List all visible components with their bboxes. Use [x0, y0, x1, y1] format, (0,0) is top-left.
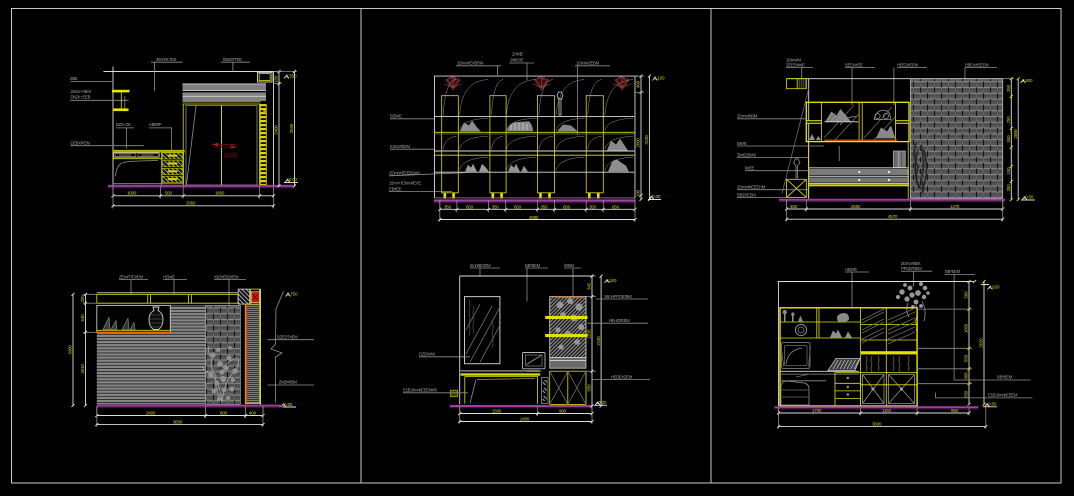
svg-text:2400: 2400 [146, 410, 156, 415]
svg-text:2400: 2400 [520, 416, 530, 421]
svg-text:2400: 2400 [274, 125, 279, 135]
svg-text:1150: 1150 [882, 408, 892, 413]
svg-text:4570: 4570 [888, 214, 898, 219]
svg-text:1Dmn#2EBM: 1Dmn#2EBM [576, 61, 600, 66]
svg-text:HEDE#ZEM: HEDE#ZEM [611, 374, 633, 379]
svg-text:ZEmRLTEE: ZEmRLTEE [156, 57, 177, 62]
svg-text:Zk#iZ@#M: Zk#iZ@#M [737, 152, 756, 157]
svg-text:HEk#E: HEk#E [163, 274, 175, 279]
svg-text:BB*BEM: BB*BEM [525, 263, 541, 268]
svg-text:2#kE#E: 2#kE#E [510, 58, 524, 63]
svg-text:BZEDT#EM: BZEDT#EM [277, 335, 298, 340]
svg-text:550: 550 [964, 390, 969, 398]
svg-text:540: 540 [80, 314, 85, 322]
svg-text:DZBX#M: DZBX#M [419, 352, 435, 357]
svg-text:300: 300 [964, 372, 969, 380]
svg-text:1050: 1050 [964, 323, 969, 333]
svg-text:k#EE: k#EE [745, 166, 755, 171]
svg-text:400: 400 [249, 410, 257, 415]
svg-text:k#BM: k#BM [564, 263, 575, 268]
svg-text:800: 800 [220, 410, 228, 415]
svg-text:HEHZ#EEM: HEHZ#EEM [609, 318, 631, 323]
svg-text:350: 350 [492, 205, 500, 210]
svg-text:DhZK+EEB: DhZK+EEB [71, 95, 91, 100]
svg-text:ZBE: ZBE [70, 76, 78, 81]
svg-text:345: 345 [587, 282, 592, 290]
svg-text:1470: 1470 [950, 204, 960, 209]
svg-text:350: 350 [1006, 84, 1011, 92]
svg-text:1235: 1235 [587, 329, 592, 339]
svg-text:150: 150 [1006, 167, 1011, 175]
svg-text:2650: 2650 [851, 204, 861, 209]
svg-text:20mm+BEK: 20mm+BEK [71, 89, 92, 94]
svg-text:3100: 3100 [644, 135, 649, 145]
svg-text:650: 650 [514, 205, 522, 210]
svg-text:3800: 3800 [872, 421, 882, 426]
svg-text:kEBZ#TEE: kEBZ#TEE [223, 57, 242, 62]
svg-text:2610: 2610 [80, 364, 85, 374]
svg-text:3600: 3600 [173, 419, 183, 424]
svg-text:18mnPPGB*BM: 18mnPPGB*BM [604, 294, 632, 299]
svg-text:DZBX/FEM: DZBX/FEM [71, 141, 91, 146]
svg-text:BZS+ZE,: BZS+ZE, [116, 122, 132, 127]
svg-text:550: 550 [587, 384, 592, 392]
svg-text:2130: 2130 [596, 336, 601, 346]
svg-text:3360: 3360 [186, 201, 196, 206]
svg-text:BK#E: BK#E [737, 141, 747, 146]
svg-text:560: 560 [964, 291, 969, 299]
svg-text:1500: 1500 [492, 408, 502, 413]
svg-text:HEEZ#EEM: HEEZ#EEM [897, 62, 918, 67]
svg-text:E3mn#kEM: E3mn#kEM [390, 144, 411, 149]
svg-text:BEEK#EE: BEEK#EE [845, 62, 863, 67]
svg-text:350: 350 [589, 205, 597, 210]
svg-text:BBEK#EEEM: BBEK#EEEM [965, 62, 989, 67]
svg-text:650: 650 [563, 205, 571, 210]
svg-text:BB*BEM: BB*BEM [997, 374, 1013, 379]
svg-text:Zk@#kBM: Zk@#kBM [279, 380, 298, 385]
svg-text:2550: 2550 [289, 123, 294, 133]
svg-text:350: 350 [444, 205, 452, 210]
svg-text:HEk#E: HEk#E [845, 267, 857, 272]
svg-text:15mn+8.5mn#EXE: 15mn+8.5mn#EXE [389, 181, 421, 186]
svg-text:950: 950 [951, 408, 959, 413]
svg-text:4880: 4880 [529, 215, 539, 220]
svg-text:E1$18mnkEEEM#B: E1$18mnkEEEM#B [403, 388, 437, 393]
svg-text:550: 550 [1006, 135, 1011, 143]
svg-text:E1$18mnkEEEM: E1$18mnkEEEM [988, 392, 1018, 397]
svg-text:750: 750 [1006, 116, 1011, 124]
svg-text:2600: 2600 [636, 138, 641, 148]
svg-text:2600: 2600 [1013, 129, 1018, 139]
svg-text:2.550: 2.550 [286, 74, 297, 79]
svg-text:550: 550 [964, 354, 969, 362]
svg-text:100: 100 [636, 189, 641, 197]
svg-text:650: 650 [612, 205, 620, 210]
svg-text:1800: 1800 [215, 191, 225, 196]
svg-text:3400: 3400 [68, 345, 73, 355]
svg-text:250: 250 [80, 295, 85, 303]
svg-text:350: 350 [1006, 184, 1011, 192]
svg-text:150: 150 [274, 75, 279, 83]
svg-text:EB#EE: EB#EE [389, 186, 402, 191]
svg-text:450: 450 [790, 204, 798, 209]
svg-text:ZEmRTE#EM: ZEmRTE#EM [119, 274, 143, 279]
svg-text:2Dmn#kBM: 2Dmn#kBM [737, 114, 758, 119]
svg-text:BEk#E: BEk#E [390, 114, 402, 119]
svg-text:BBZKEEM: BBZKEEM [737, 192, 756, 197]
svg-text:2620: 2620 [979, 338, 984, 348]
svg-text:1000: 1000 [127, 191, 137, 196]
svg-text:1700: 1700 [812, 408, 822, 413]
svg-text:560: 560 [165, 191, 173, 196]
svg-text:650: 650 [466, 205, 474, 210]
svg-text:ABB#P: ABB#P [149, 122, 162, 127]
svg-text:350: 350 [540, 205, 548, 210]
svg-text:ZHME: ZHME [512, 52, 523, 57]
svg-text:2Dmn#kEEEHM: 2Dmn#kEEEHM [737, 185, 766, 190]
svg-text:XkZ#EBZ#EM: XkZ#EBZ#EM [214, 274, 239, 279]
svg-text:PPGB*BEM: PPGB*BEM [901, 266, 922, 271]
svg-text:400: 400 [636, 80, 641, 88]
svg-text:1Dmn#EXBRM: 1Dmn#EXBRM [457, 61, 484, 66]
svg-text:900: 900 [559, 408, 567, 413]
svg-text:5mnBE#ZM: 5mnBE#ZM [470, 263, 491, 268]
svg-text:BB*BEM: BB*BEM [945, 269, 961, 274]
svg-text:ZEEE#k#E: ZEEE#k#E [786, 62, 805, 67]
svg-text:±0.00: ±0.00 [287, 177, 298, 182]
